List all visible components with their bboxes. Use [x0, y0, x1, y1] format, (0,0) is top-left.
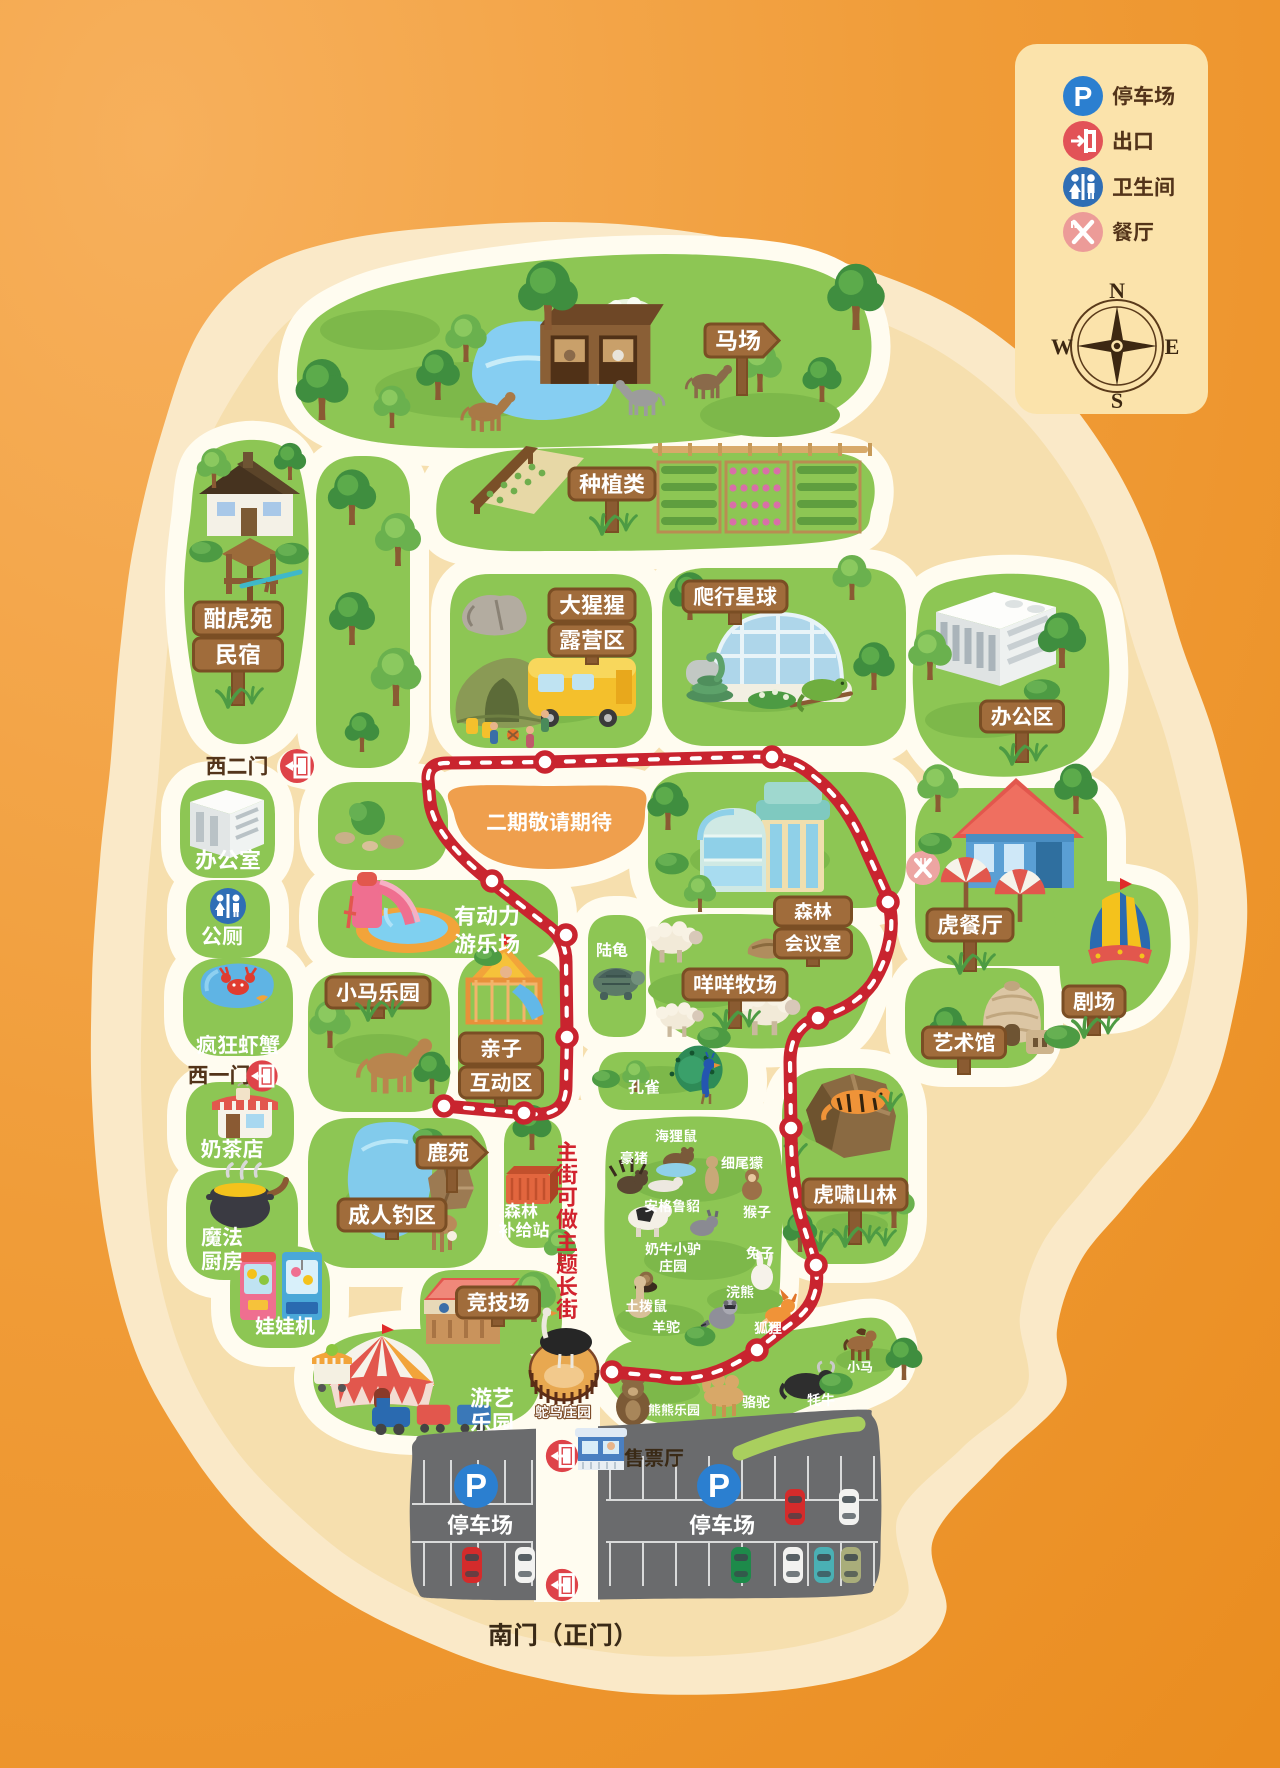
svg-text:E: E [1165, 334, 1180, 359]
svg-text:W: W [1051, 334, 1073, 359]
svg-text:N: N [1109, 278, 1125, 303]
svg-text:P: P [1074, 81, 1093, 112]
svg-text:P: P [708, 1467, 730, 1504]
svg-text:P: P [465, 1467, 487, 1504]
svg-text:S: S [1111, 388, 1123, 413]
